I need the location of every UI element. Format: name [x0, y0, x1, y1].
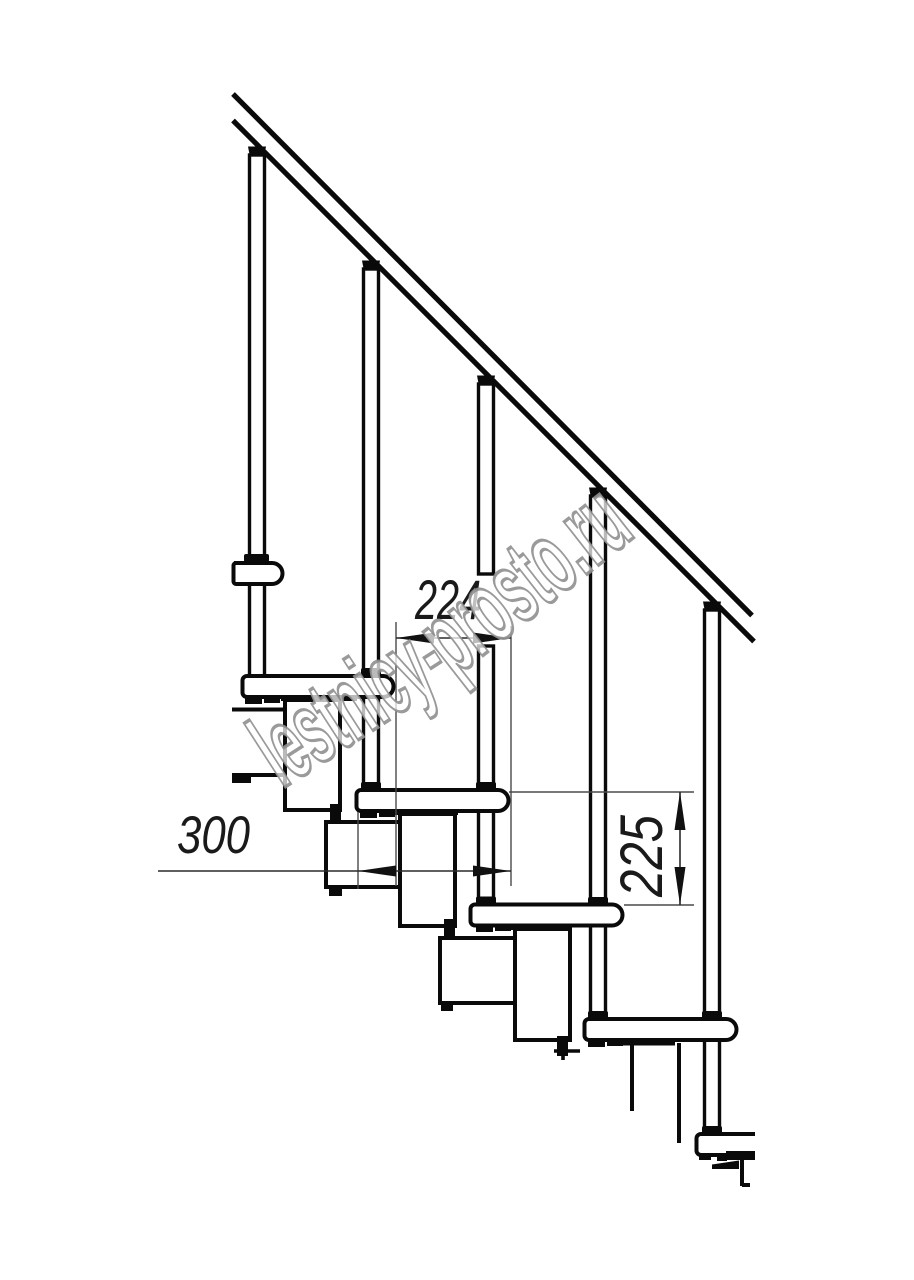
- svg-text:300: 300: [177, 806, 250, 865]
- svg-text:225: 225: [608, 814, 675, 897]
